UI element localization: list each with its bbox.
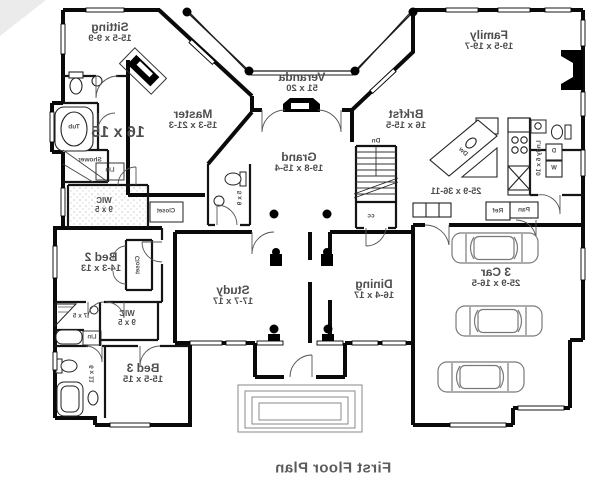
room-label-master: Master 15-3 x 21-3 <box>169 108 218 132</box>
grand-fireplace <box>283 98 320 112</box>
room-label-brkfst: Brkfst 16 x 15-5 <box>386 108 426 132</box>
fixture-label-shower: Shower <box>78 156 101 163</box>
kitchen-powder-fixtures <box>531 120 571 139</box>
fixture-label-closet-hall: Closet <box>157 209 175 216</box>
fixture-label-ref: Ref <box>493 207 503 214</box>
room-label-veranda: Veranda 51 x 20 <box>279 71 326 95</box>
room-label-family: Family 19-5 x 19-7 <box>465 29 514 53</box>
dim-label-kitchen-area: 25-9 x 36-11 <box>431 186 482 196</box>
room-label-wic-master: WIC 9 x 5 <box>95 197 113 215</box>
plan-title: First Floor Plan <box>275 461 391 478</box>
fixture-label-pan: Pan <box>518 206 530 213</box>
room-label-study: Study 17-7 x 17 <box>213 284 253 308</box>
room-label-dining: Dining 16-4 x 17 <box>354 278 394 302</box>
family-fireplace <box>561 50 583 90</box>
fixture-label-cc: cc <box>367 212 374 219</box>
fixture-label-washer: W <box>551 166 557 173</box>
dim-label-hall-bath: 7 x 5 <box>73 312 87 319</box>
fixture-label-dn: Dn <box>372 137 381 144</box>
fixture-label-lin2: Lin <box>88 335 97 342</box>
fixture-label-lin1: Lin <box>106 168 115 175</box>
dim-label-bed3-bath: 6 x 11 <box>88 365 95 383</box>
room-label-wic-bed3: WIC 9 x 5 <box>118 310 136 328</box>
room-label-bed2: Bed 2 14-3 x 13 <box>81 251 121 275</box>
dim-label-master-bath: 16 x 15 <box>91 124 144 142</box>
room-label-bed3: Bed 3 15-5 x 15 <box>123 362 163 386</box>
fixture-label-tub: Tub <box>68 123 79 130</box>
fixture-label-closet-bed2: Closet <box>136 256 143 274</box>
fixture-label-dryer: D <box>552 149 556 156</box>
room-label-laundry: Lndy 6 x 10 <box>535 140 542 175</box>
dim-label-powder: 5 x 9 <box>236 191 243 205</box>
garage-door-2 <box>518 406 564 410</box>
floor-plan-page: Sitting 15-5 x 9-9 Master 15-3 x 21-3 Ve… <box>0 0 600 485</box>
gallery-columns <box>270 210 334 267</box>
garage-door-1 <box>450 423 506 427</box>
room-label-grand: Grand 19-8 x 15-4 <box>275 151 324 175</box>
room-label-garage: 3 Car 25-9 x 16-5 <box>472 266 521 290</box>
staircase <box>354 146 398 198</box>
front-steps <box>238 385 362 432</box>
garage-cars <box>438 233 542 392</box>
room-label-sitting: Sitting 15-5 x 9-9 <box>88 21 131 45</box>
page-corner-shadow <box>0 0 46 36</box>
